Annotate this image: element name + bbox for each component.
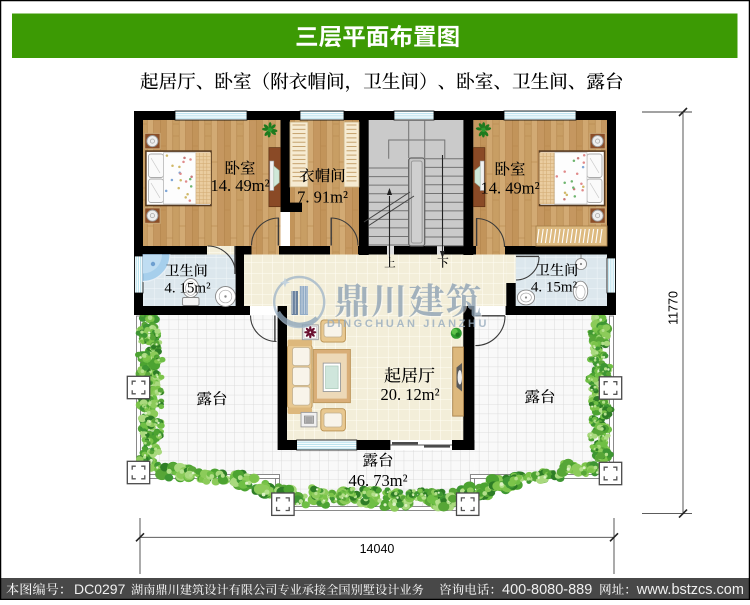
svg-text:14040: 14040 — [360, 542, 395, 556]
svg-text:20. 12m²: 20. 12m² — [380, 385, 439, 404]
svg-text:46. 73m²: 46. 73m² — [348, 471, 407, 490]
svg-text:www.bstzcs.com: www.bstzcs.com — [636, 582, 744, 598]
svg-text:7. 91m²: 7. 91m² — [297, 187, 348, 206]
svg-text:11770: 11770 — [667, 291, 681, 325]
svg-text:4. 15m²: 4. 15m² — [164, 280, 211, 296]
svg-text:14. 49m²: 14. 49m² — [480, 178, 539, 197]
svg-text:400-8080-889: 400-8080-889 — [502, 582, 592, 598]
svg-text:DINGCHUAN JIANZHU: DINGCHUAN JIANZHU — [327, 318, 489, 330]
svg-text:14. 49m²: 14. 49m² — [210, 176, 269, 195]
svg-text:4. 15m²: 4. 15m² — [531, 279, 578, 295]
svg-text:DC0297: DC0297 — [74, 581, 126, 597]
